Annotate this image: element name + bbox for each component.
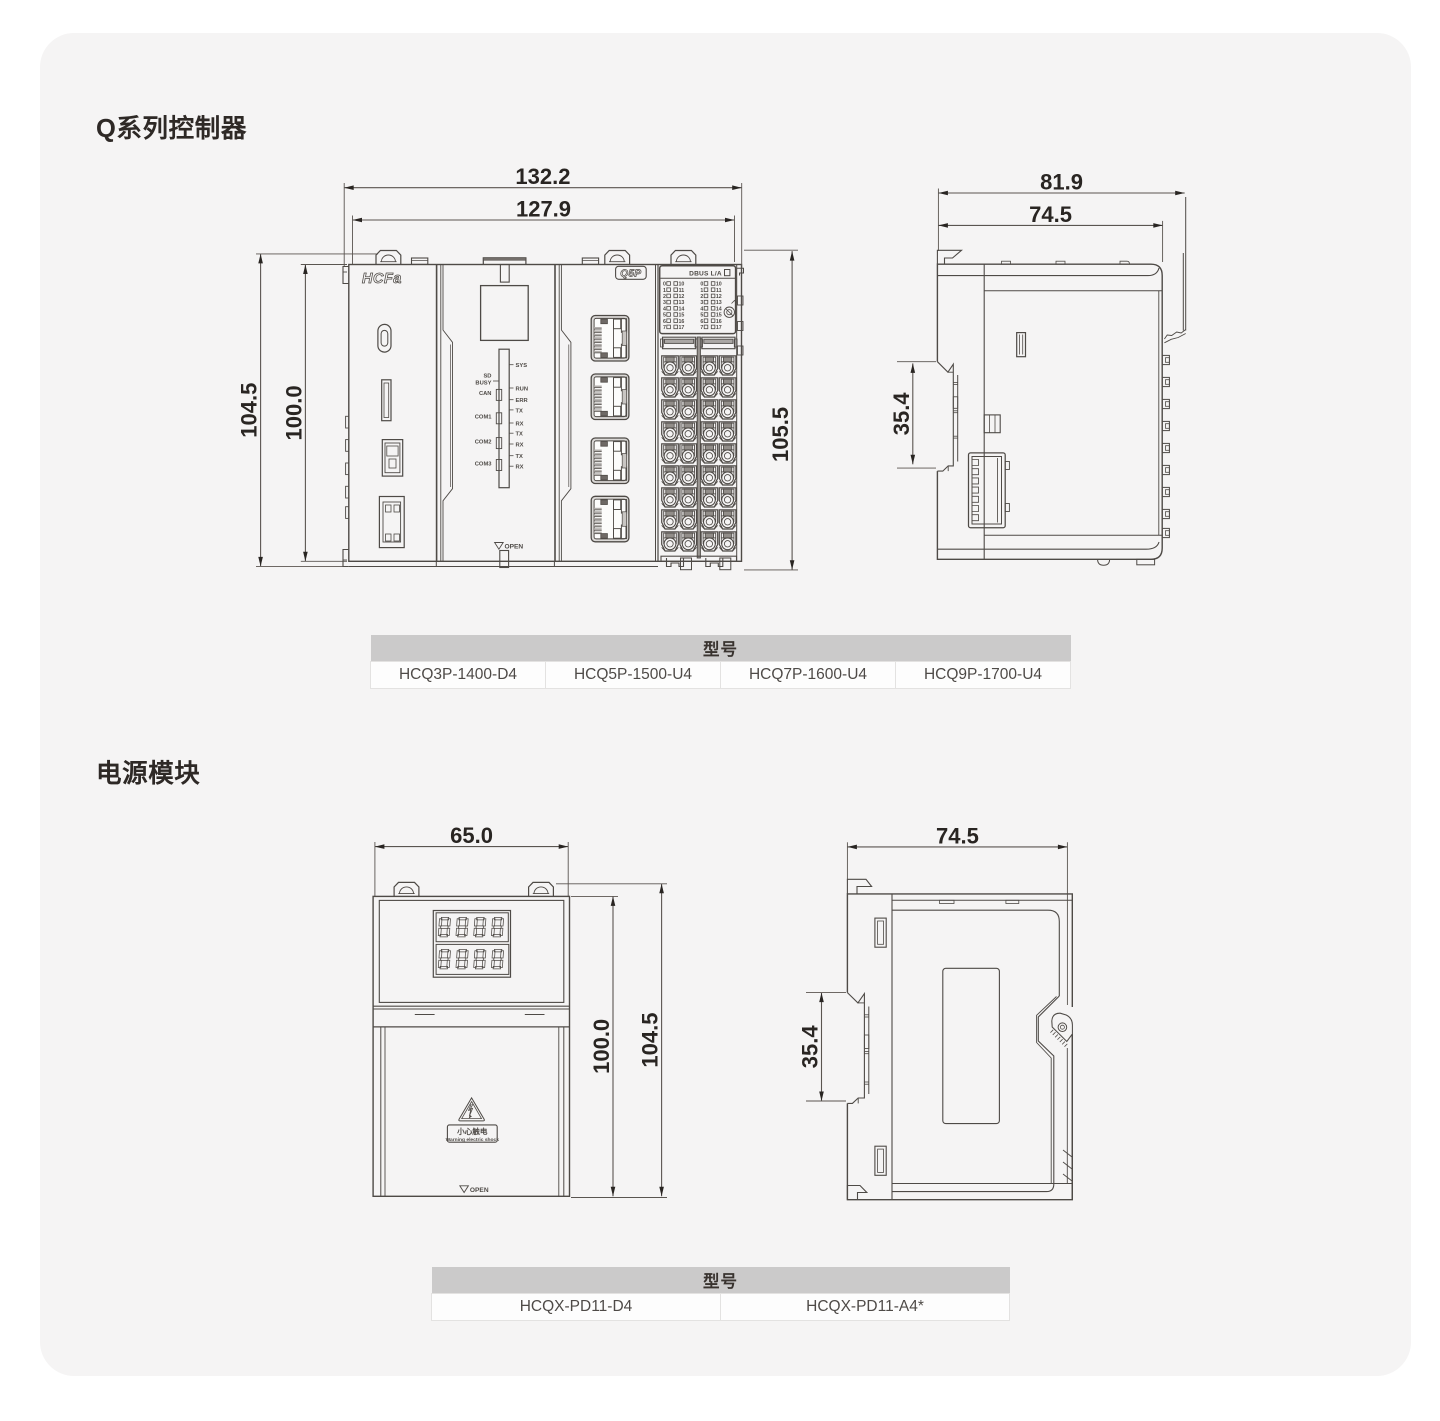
svg-text:100.0: 100.0: [589, 1019, 614, 1074]
svg-text:Q5P: Q5P: [620, 269, 641, 280]
svg-text:DBUS L/A: DBUS L/A: [689, 270, 722, 277]
svg-text:10: 10: [678, 282, 684, 288]
svg-text:81.9: 81.9: [1040, 170, 1083, 195]
svg-text:OPEN: OPEN: [505, 544, 524, 551]
svg-text:1: 1: [700, 288, 703, 294]
svg-text:6: 6: [663, 319, 666, 325]
svg-text:16: 16: [716, 319, 722, 325]
svg-text:5: 5: [700, 313, 703, 319]
svg-text:12: 12: [678, 294, 684, 300]
svg-text:10: 10: [716, 282, 722, 288]
svg-text:COM2: COM2: [475, 439, 492, 445]
svg-text:14: 14: [716, 306, 722, 312]
svg-text:100.0: 100.0: [281, 385, 306, 440]
svg-text:13: 13: [716, 300, 722, 306]
svg-text:2: 2: [700, 294, 703, 300]
svg-text:COM3: COM3: [475, 461, 493, 467]
svg-text:11: 11: [679, 288, 685, 294]
svg-text:4: 4: [700, 306, 703, 312]
svg-text:TX: TX: [516, 454, 524, 460]
svg-text:14: 14: [678, 306, 684, 312]
svg-text:7: 7: [700, 325, 703, 331]
svg-text:15: 15: [716, 313, 722, 319]
svg-text:RX: RX: [516, 422, 524, 428]
svg-text:11: 11: [716, 288, 722, 294]
svg-text:35.4: 35.4: [798, 1025, 823, 1069]
svg-text:74.5: 74.5: [936, 823, 979, 848]
svg-text:132.2: 132.2: [515, 164, 570, 189]
svg-text:SD: SD: [483, 373, 491, 379]
svg-text:15: 15: [678, 313, 684, 319]
svg-text:0: 0: [700, 282, 703, 288]
svg-text:ERR: ERR: [516, 398, 529, 404]
svg-text:3: 3: [663, 300, 666, 306]
svg-text:35.4: 35.4: [889, 392, 914, 436]
svg-text:5: 5: [663, 313, 666, 319]
svg-text:6: 6: [700, 319, 703, 325]
svg-text:3: 3: [700, 300, 703, 306]
svg-text:17: 17: [716, 325, 722, 331]
svg-text:CAN: CAN: [479, 391, 492, 397]
svg-text:RUN: RUN: [516, 387, 529, 393]
svg-text:SYS: SYS: [516, 363, 528, 369]
svg-text:1: 1: [663, 288, 666, 294]
svg-text:17: 17: [678, 325, 684, 331]
svg-text:16: 16: [678, 319, 684, 325]
svg-text:105.5: 105.5: [768, 407, 793, 462]
svg-text:65.0: 65.0: [450, 823, 493, 848]
svg-text:RX: RX: [516, 465, 524, 471]
svg-text:Warning electric shock: Warning electric shock: [446, 1137, 500, 1143]
svg-text:小心触电: 小心触电: [456, 1126, 488, 1136]
svg-text:TX: TX: [516, 432, 524, 438]
svg-text:7: 7: [663, 325, 666, 331]
svg-text:13: 13: [678, 300, 684, 306]
svg-text:0: 0: [663, 282, 666, 288]
svg-text:12: 12: [716, 294, 722, 300]
svg-text:COM1: COM1: [475, 415, 493, 421]
svg-text:2: 2: [663, 294, 666, 300]
svg-text:127.9: 127.9: [516, 197, 571, 222]
svg-text:104.5: 104.5: [237, 383, 262, 438]
svg-text:4: 4: [663, 306, 666, 312]
svg-text:HCFa: HCFa: [362, 271, 402, 287]
svg-text:RX: RX: [516, 443, 524, 449]
svg-text:TX: TX: [516, 408, 524, 414]
svg-text:OPEN: OPEN: [470, 1187, 489, 1194]
svg-text:74.5: 74.5: [1029, 202, 1072, 227]
svg-text:BUSY: BUSY: [475, 380, 491, 386]
svg-text:104.5: 104.5: [638, 1013, 663, 1068]
